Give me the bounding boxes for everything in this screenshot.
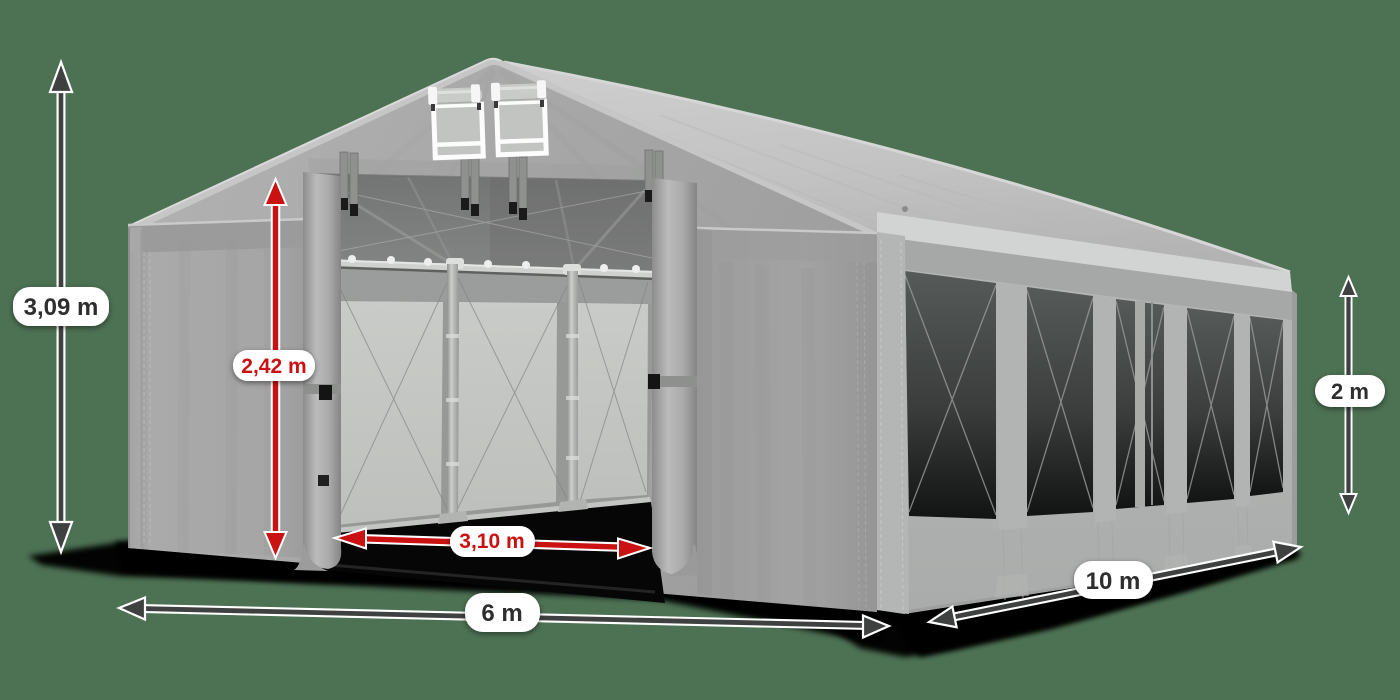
svg-text:2,42 m: 2,42 m (241, 355, 306, 378)
svg-text:3,09 m: 3,09 m (24, 294, 99, 321)
svg-text:2 m: 2 m (1331, 379, 1369, 404)
svg-text:10 m: 10 m (1086, 568, 1141, 595)
svg-text:3,10 m: 3,10 m (459, 530, 524, 553)
svg-text:6 m: 6 m (481, 600, 522, 627)
